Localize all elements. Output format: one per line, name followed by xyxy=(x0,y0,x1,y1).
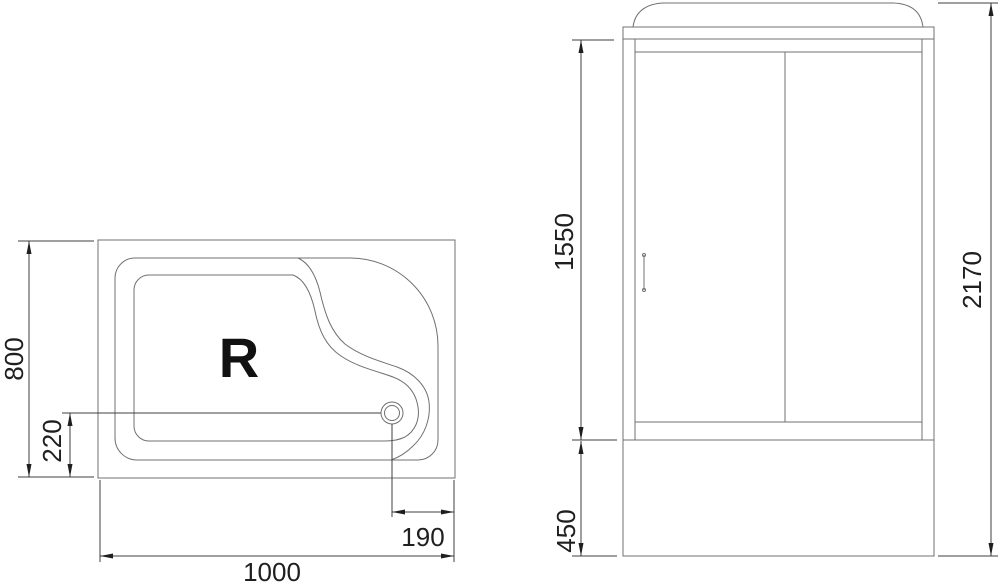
roof-dome xyxy=(633,3,923,27)
arrow-depth-top xyxy=(27,241,32,254)
drain-inner-circle xyxy=(385,406,400,421)
technical-drawing-canvas: R 800 220 1000 190 1550 450 2170 xyxy=(0,0,1000,584)
top-frame-band xyxy=(623,27,934,39)
arrow-2170-bottom xyxy=(989,543,994,556)
arrow-1550-bottom xyxy=(579,427,584,440)
dim-label-drain-from-bottom: 220 xyxy=(39,419,65,462)
dim-label-base-height: 450 xyxy=(553,509,579,552)
arrow-width-left xyxy=(100,554,113,559)
basin-outline xyxy=(134,275,418,441)
dim-label-total-height: 2170 xyxy=(959,251,985,309)
arrow-width-right xyxy=(441,554,454,559)
shower-cabin-drawing xyxy=(0,0,1000,584)
tray-orientation-label: R xyxy=(219,330,259,386)
arrow-220-bottom xyxy=(68,464,73,477)
tray-outer-rect xyxy=(98,240,455,478)
tray-top-view xyxy=(98,240,455,478)
dim-label-door-height: 1550 xyxy=(551,213,577,271)
arrow-190-right xyxy=(441,510,454,515)
arrow-1550-top xyxy=(579,40,584,53)
arrow-2170-top xyxy=(989,3,994,16)
tray-rim-outline xyxy=(115,258,438,460)
dim-label-depth: 800 xyxy=(1,337,27,380)
dimension-arrows xyxy=(27,3,994,559)
arrow-190-left xyxy=(392,510,405,515)
dim-label-width: 1000 xyxy=(243,559,301,584)
arrow-depth-bottom xyxy=(27,464,32,477)
cabin-front-view xyxy=(623,3,934,556)
dim-label-drain-from-right: 190 xyxy=(401,524,444,550)
arrow-220-top xyxy=(68,413,73,426)
rim-sweep-curve xyxy=(298,258,429,460)
base-panel xyxy=(623,440,934,556)
arrow-450-top xyxy=(579,441,584,454)
